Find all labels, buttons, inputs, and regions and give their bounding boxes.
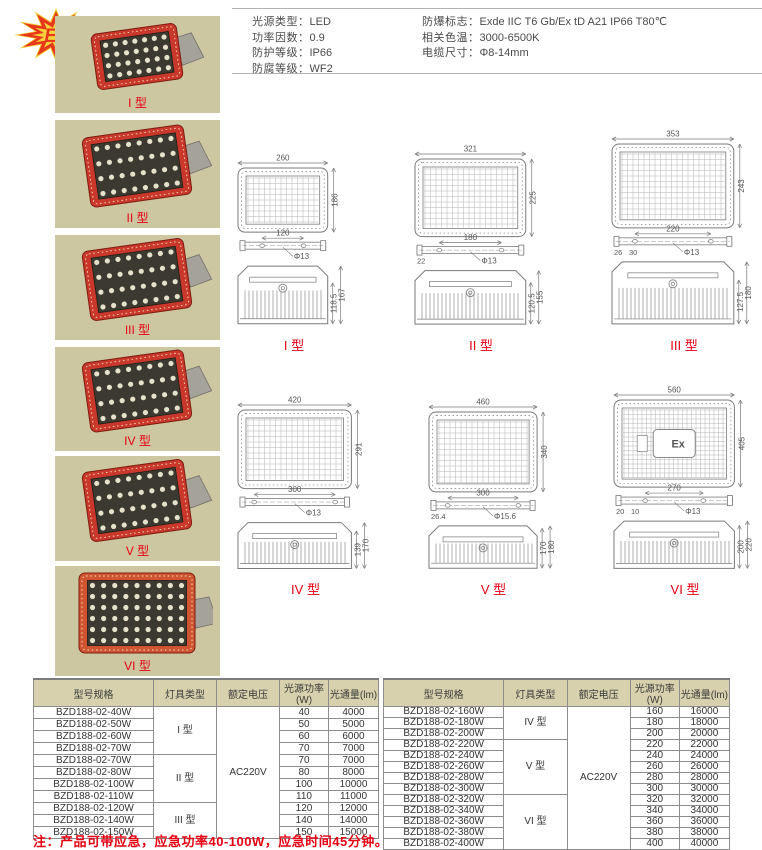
- spec-value: Φ8-14mm: [480, 47, 529, 59]
- photo-type-label: I 型: [128, 96, 147, 110]
- table-row: BZD188-02-40WI 型AC220V404000: [34, 707, 379, 719]
- drawing-type-label: II 型: [469, 335, 493, 354]
- model-cell: BZD188-02-340W: [384, 806, 504, 817]
- table-header-cell: 型号规格: [34, 679, 154, 707]
- bracket-extra-dim: 30: [629, 248, 637, 257]
- spec-item: 电缆尺寸：Φ8-14mm: [422, 46, 667, 62]
- technical-drawing: 460340300Φ15.626.4170180: [423, 396, 565, 576]
- power-cell: 260: [630, 762, 679, 773]
- floodlight-photo: [63, 567, 213, 659]
- flux-cell: 7000: [329, 755, 379, 767]
- voltage-cell: AC220V: [567, 707, 630, 850]
- photo-type-label: V 型: [126, 544, 149, 558]
- flux-cell: 7000: [329, 743, 379, 755]
- technical-drawing: 321225180Φ1322120.5155: [409, 143, 554, 332]
- table-header-cell: 额定电压: [217, 679, 280, 707]
- hole-diameter-label: Φ13: [685, 507, 701, 516]
- power-cell: 120: [280, 803, 329, 815]
- power-cell: 360: [630, 817, 679, 828]
- flux-cell: 14000: [329, 815, 379, 827]
- spec-label: 相关色温：: [422, 32, 480, 44]
- spec-table-left: 型号规格灯具类型额定电压光源功率(W)光通量(lm)BZD188-02-40WI…: [33, 678, 379, 839]
- dimension-label: 321: [463, 145, 477, 154]
- floodlight-photo: [63, 457, 213, 544]
- dimension-label: 560: [668, 386, 682, 395]
- model-cell: BZD188-02-180W: [384, 718, 504, 729]
- flux-cell: 36000: [679, 817, 729, 828]
- product-photo-panel: I 型: [55, 16, 220, 113]
- dimension-label: 460: [476, 398, 490, 407]
- floodlight-photo: [63, 17, 213, 96]
- dimension-drawing: 460340300Φ15.626.4170180V 型: [423, 396, 565, 598]
- hole-diameter-label: Φ15.6: [494, 512, 517, 521]
- spec-value: 3000-6500K: [480, 32, 540, 44]
- flux-cell: 18000: [679, 718, 729, 729]
- dimension-drawing: Ex560405270Φ132010200220VI 型: [608, 384, 762, 598]
- technical-drawing: Ex560405270Φ132010200220: [608, 384, 762, 576]
- flux-cell: 24000: [679, 751, 729, 762]
- dimension-label: 405: [737, 436, 746, 450]
- dimension-label: 180: [547, 540, 556, 554]
- product-photo-panel: VI 型: [55, 566, 220, 676]
- flux-cell: 16000: [679, 707, 729, 718]
- flux-cell: 26000: [679, 762, 729, 773]
- spec-item: 功率因数：0.9: [252, 31, 333, 47]
- dimension-label: 270: [668, 484, 682, 493]
- model-cell: BZD188-02-70W: [34, 743, 154, 755]
- dimension-drawing: 260186120Φ13118.5167I 型: [232, 152, 356, 354]
- dimension-drawing: 420291300Φ13139170IV 型: [232, 394, 379, 598]
- model-cell: BZD188-02-360W: [384, 817, 504, 828]
- flux-cell: 8000: [329, 767, 379, 779]
- bracket-extra-dim: 26.4: [431, 512, 446, 521]
- hole-diameter-label: Φ13: [684, 248, 700, 257]
- table-header-cell: 灯具类型: [154, 679, 217, 707]
- power-cell: 280: [630, 773, 679, 784]
- flux-cell: 28000: [679, 773, 729, 784]
- bracket-extra-dim: 20: [616, 507, 624, 516]
- table-header-cell: 光通量(lm): [679, 679, 729, 707]
- power-cell: 60: [280, 731, 329, 743]
- drawing-type-label: I 型: [284, 335, 304, 354]
- dimension-label: 353: [666, 130, 680, 139]
- spec-label: 防爆标志：: [422, 16, 480, 28]
- table-header-cell: 光源功率(W): [280, 679, 329, 707]
- bracket-extra-dim: 10: [631, 507, 639, 516]
- power-cell: 70: [280, 743, 329, 755]
- flux-cell: 4000: [329, 707, 379, 719]
- power-cell: 400: [630, 839, 679, 850]
- floodlight-photo: [63, 121, 213, 211]
- dimension-drawings-row-2: 420291300Φ13139170IV 型460340300Φ15.626.4…: [232, 372, 762, 598]
- dimension-label: 300: [288, 485, 302, 494]
- power-cell: 300: [630, 784, 679, 795]
- spec-value: IP66: [310, 47, 333, 59]
- dimension-label: 300: [476, 488, 490, 497]
- model-cell: BZD188-02-260W: [384, 762, 504, 773]
- floodlight-photo: [63, 236, 213, 323]
- spec-label: 光源类型：: [252, 16, 310, 28]
- product-photo-panel: IV 型: [55, 347, 220, 451]
- power-cell: 100: [280, 779, 329, 791]
- type-cell: I 型: [154, 707, 217, 755]
- flux-cell: 30000: [679, 784, 729, 795]
- spec-label: 电缆尺寸：: [422, 47, 480, 59]
- power-cell: 110: [280, 791, 329, 803]
- table-header-cell: 灯具类型: [504, 679, 567, 707]
- spec-item: 相关色温：3000-6500K: [422, 31, 667, 47]
- product-photo-panel: V 型: [55, 456, 220, 561]
- dimension-drawings-row-1: 260186120Φ13118.5167I 型321225180Φ1322120…: [232, 118, 762, 354]
- dimension-label: 420: [288, 396, 302, 405]
- model-cell: BZD188-02-140W: [34, 815, 154, 827]
- flux-cell: 10000: [329, 779, 379, 791]
- power-cell: 340: [630, 806, 679, 817]
- bracket-extra-dim: 26: [614, 248, 622, 257]
- model-cell: BZD188-02-220W: [384, 740, 504, 751]
- photo-type-label: IV 型: [124, 434, 151, 448]
- table-row: BZD188-02-120WIII 型12012000: [34, 803, 379, 815]
- spec-item: 防爆标志：Exde IIC T6 Gb/Ex tD A21 IP66 T80℃: [422, 15, 667, 31]
- photo-type-label: III 型: [125, 323, 150, 337]
- photo-type-label: VI 型: [124, 659, 151, 673]
- hole-diameter-label: Φ13: [294, 252, 310, 261]
- dimension-label: 291: [354, 442, 363, 456]
- dimension-label: 170: [361, 538, 370, 552]
- flux-cell: 32000: [679, 795, 729, 806]
- table-header-cell: 光通量(lm): [329, 679, 379, 707]
- power-cell: 40: [280, 707, 329, 719]
- spec-column-left: 光源类型：LED功率因数：0.9防护等级：IP66防腐等级：WF2: [252, 15, 333, 77]
- table-row: BZD188-02-320WVI 型32032000: [384, 795, 730, 806]
- dimension-label: 340: [540, 445, 549, 459]
- table-row: BZD188-02-220WV 型22022000: [384, 740, 730, 751]
- model-cell: BZD188-02-120W: [34, 803, 154, 815]
- type-cell: IV 型: [504, 707, 567, 740]
- spec-table-right: 型号规格灯具类型额定电压光源功率(W)光通量(lm)BZD188-02-160W…: [383, 678, 730, 850]
- dimension-label: 120: [276, 229, 290, 238]
- power-cell: 70: [280, 755, 329, 767]
- flux-cell: 38000: [679, 828, 729, 839]
- dimension-drawing: 321225180Φ1322120.5155II 型: [409, 143, 554, 354]
- model-cell: BZD188-02-320W: [384, 795, 504, 806]
- spec-value: Exde IIC T6 Gb/Ex tD A21 IP66 T80℃: [480, 16, 667, 28]
- spec-label: 功率因数：: [252, 32, 310, 44]
- emergency-note: 注：产品可带应急，应急功率40-100W，应急时间45分钟。: [33, 831, 388, 850]
- power-cell: 80: [280, 767, 329, 779]
- dimension-label: 220: [744, 538, 753, 552]
- technical-drawing: 353243220Φ132630127.5180: [606, 128, 762, 332]
- voltage-cell: AC220V: [217, 707, 280, 839]
- photo-type-label: II 型: [126, 211, 148, 225]
- hole-diameter-label: Φ13: [481, 257, 497, 266]
- model-cell: BZD188-02-300W: [384, 784, 504, 795]
- spec-tables-area: 型号规格灯具类型额定电压光源功率(W)光通量(lm)BZD188-02-40WI…: [33, 678, 733, 844]
- flux-cell: 6000: [329, 731, 379, 743]
- model-cell: BZD188-02-200W: [384, 729, 504, 740]
- table-row: BZD188-02-160WIV 型AC220V16016000: [384, 707, 730, 718]
- spec-value: 0.9: [310, 32, 325, 44]
- product-photo-panel: III 型: [55, 235, 220, 340]
- power-cell: 200: [630, 729, 679, 740]
- dimension-label: 167: [338, 288, 347, 302]
- model-cell: BZD188-02-400W: [384, 839, 504, 850]
- flux-cell: 20000: [679, 729, 729, 740]
- table-header-cell: 额定电压: [567, 679, 630, 707]
- spec-item: 防护等级：IP66: [252, 46, 333, 62]
- type-cell: VI 型: [504, 795, 567, 850]
- table-header-cell: 型号规格: [384, 679, 504, 707]
- model-cell: BZD188-02-110W: [34, 791, 154, 803]
- power-cell: 50: [280, 719, 329, 731]
- flux-cell: 11000: [329, 791, 379, 803]
- model-cell: BZD188-02-380W: [384, 828, 504, 839]
- spec-item: 光源类型：LED: [252, 15, 333, 31]
- spec-value: WF2: [310, 63, 333, 75]
- model-cell: BZD188-02-100W: [34, 779, 154, 791]
- dimension-label: 155: [535, 290, 544, 304]
- spec-header: 光源类型：LED功率因数：0.9防护等级：IP66防腐等级：WF2 防爆标志：E…: [232, 8, 762, 74]
- product-photo-panel: II 型: [55, 120, 220, 228]
- spec-label: 防腐等级：: [252, 63, 310, 75]
- drawing-type-label: V 型: [481, 579, 506, 598]
- dimension-label: 180: [744, 286, 753, 300]
- model-cell: BZD188-02-80W: [34, 767, 154, 779]
- spec-value: LED: [310, 16, 331, 28]
- bracket-extra-dim: 22: [417, 257, 425, 266]
- drawing-type-label: IV 型: [291, 579, 320, 598]
- dimension-label: 225: [528, 191, 537, 205]
- spec-column-right: 防爆标志：Exde IIC T6 Gb/Ex tD A21 IP66 T80℃相…: [422, 15, 667, 62]
- model-cell: BZD188-02-240W: [384, 751, 504, 762]
- model-cell: BZD188-02-60W: [34, 731, 154, 743]
- hole-diameter-label: Φ13: [306, 509, 322, 518]
- flux-cell: 34000: [679, 806, 729, 817]
- model-cell: BZD188-02-70W: [34, 755, 154, 767]
- model-cell: BZD188-02-50W: [34, 719, 154, 731]
- dimension-label: 220: [666, 224, 680, 233]
- dimension-label: 186: [331, 193, 340, 207]
- flux-cell: 40000: [679, 839, 729, 850]
- power-cell: 160: [630, 707, 679, 718]
- power-cell: 140: [280, 815, 329, 827]
- model-cell: BZD188-02-280W: [384, 773, 504, 784]
- spec-label: 防护等级：: [252, 47, 310, 59]
- dimension-label: 243: [737, 179, 746, 193]
- nameplate-text: Ex: [671, 439, 685, 451]
- model-cell: BZD188-02-40W: [34, 707, 154, 719]
- dimension-label: 260: [276, 154, 290, 163]
- power-cell: 240: [630, 751, 679, 762]
- flux-cell: 5000: [329, 719, 379, 731]
- table-header-cell: 光源功率(W): [630, 679, 679, 707]
- dimension-label: 180: [463, 233, 477, 242]
- model-cell: BZD188-02-160W: [384, 707, 504, 718]
- drawing-type-label: III 型: [670, 335, 697, 354]
- drawing-type-label: VI 型: [671, 579, 700, 598]
- type-cell: II 型: [154, 755, 217, 803]
- technical-drawing: 420291300Φ13139170: [232, 394, 379, 576]
- flux-cell: 12000: [329, 803, 379, 815]
- type-cell: V 型: [504, 740, 567, 795]
- power-cell: 320: [630, 795, 679, 806]
- flux-cell: 22000: [679, 740, 729, 751]
- table-row: BZD188-02-70WII 型707000: [34, 755, 379, 767]
- floodlight-photo: [63, 348, 213, 434]
- dimension-drawing: 353243220Φ132630127.5180III 型: [606, 128, 762, 354]
- power-cell: 220: [630, 740, 679, 751]
- technical-drawing: 260186120Φ13118.5167: [232, 152, 356, 332]
- power-cell: 380: [630, 828, 679, 839]
- spec-item: 防腐等级：WF2: [252, 62, 333, 78]
- power-cell: 180: [630, 718, 679, 729]
